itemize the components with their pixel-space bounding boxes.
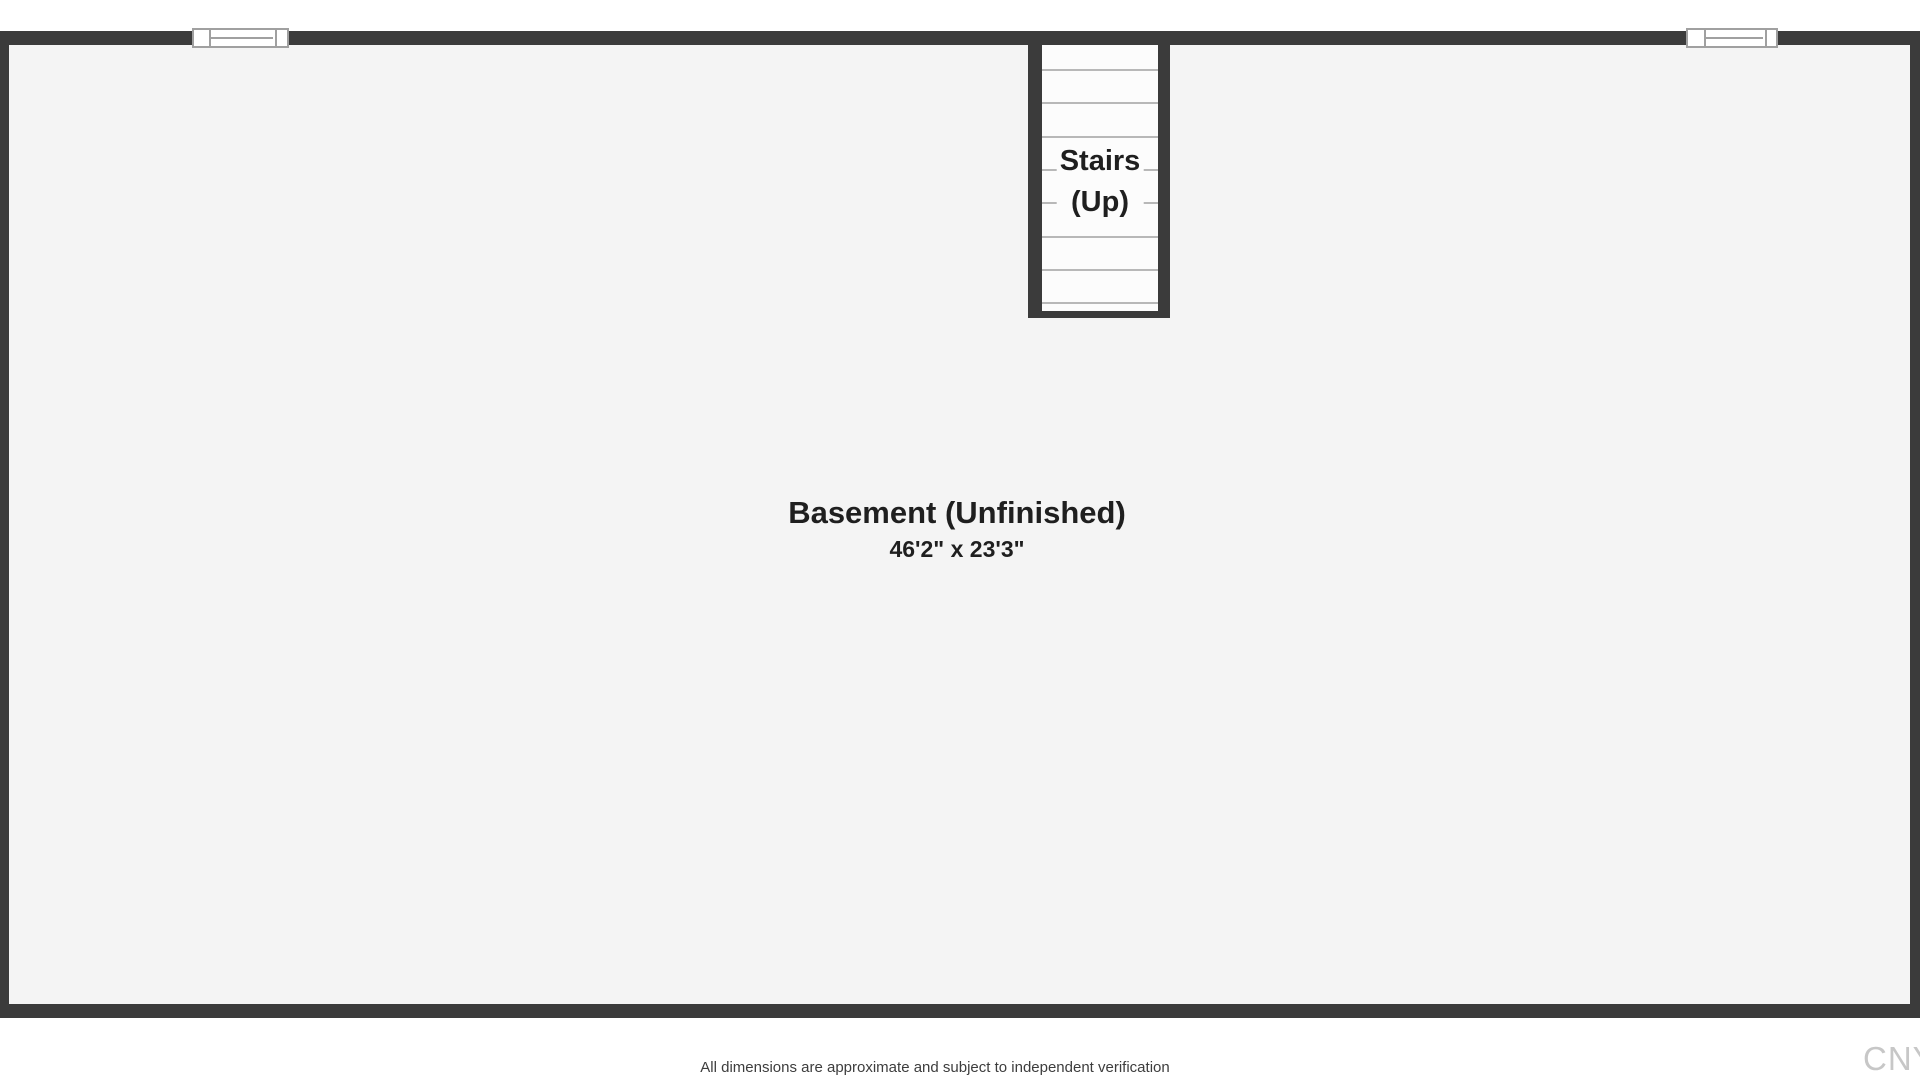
- window-glass-line: [211, 37, 273, 39]
- stairs-label-line1: Stairs: [1060, 141, 1141, 182]
- stair-tread-line: [1042, 236, 1158, 238]
- room-title-block: Basement (Unfinished) 46'2" x 23'3": [0, 494, 1914, 568]
- stair-tread-line: [1042, 269, 1158, 271]
- stairs-label-line2: (Up): [1060, 182, 1141, 223]
- stair-tread-line: [1042, 69, 1158, 71]
- window-glass-line: [1706, 37, 1763, 39]
- room-name: Basement (Unfinished): [0, 494, 1914, 531]
- window-frame-cap: [275, 30, 277, 46]
- watermark-text: CNY: [1863, 1040, 1920, 1078]
- window-symbol-right: [1686, 28, 1778, 48]
- floor-plan-canvas: Stairs (Up) Basement (Unfinished) 46'2" …: [0, 0, 1920, 1080]
- stairwell: Stairs (Up): [1028, 45, 1170, 318]
- stair-tread-line: [1042, 302, 1158, 304]
- stair-tread-line: [1042, 102, 1158, 104]
- stair-tread-line: [1042, 136, 1158, 138]
- room-dimensions: 46'2" x 23'3": [0, 531, 1914, 568]
- window-symbol-left: [192, 28, 289, 48]
- disclaimer-text: All dimensions are approximate and subje…: [0, 1059, 1870, 1076]
- window-frame-cap: [1765, 30, 1767, 46]
- stairs-label: Stairs (Up): [1057, 141, 1144, 223]
